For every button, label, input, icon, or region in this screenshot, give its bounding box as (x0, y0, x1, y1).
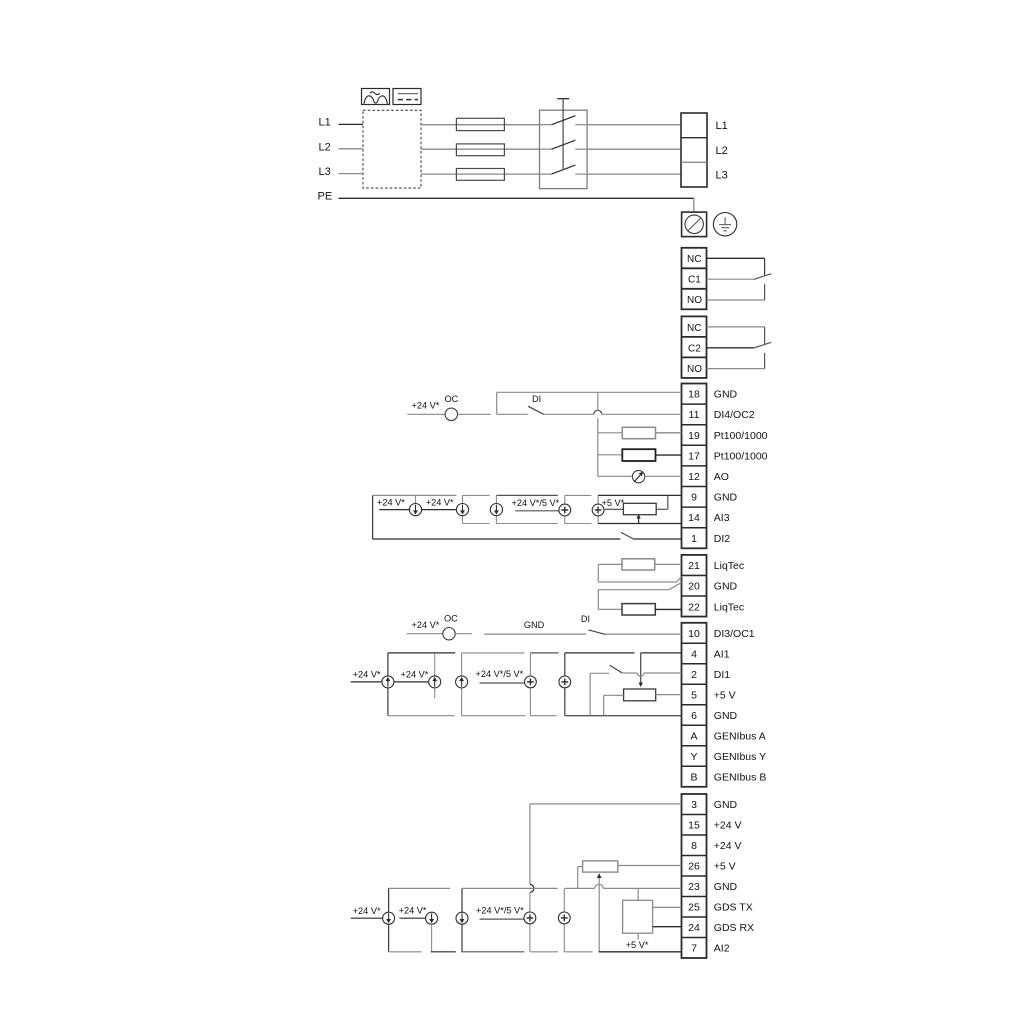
svg-text:GND: GND (714, 581, 738, 593)
svg-text:L3: L3 (319, 166, 331, 178)
svg-text:22: 22 (688, 601, 700, 613)
svg-text:24: 24 (688, 922, 700, 934)
svg-text:5: 5 (691, 689, 697, 701)
svg-text:PE: PE (318, 191, 333, 203)
svg-text:DI: DI (532, 394, 541, 404)
svg-text:2: 2 (691, 669, 697, 681)
svg-text:+24 V*: +24 V* (353, 906, 381, 916)
svg-text:GND: GND (524, 620, 545, 630)
svg-text:NO: NO (687, 295, 702, 306)
svg-text:9: 9 (691, 492, 697, 504)
svg-text:GDS RX: GDS RX (714, 922, 754, 934)
svg-text:4: 4 (691, 648, 697, 660)
svg-text:Pt100/1000: Pt100/1000 (714, 450, 768, 462)
svg-text:18: 18 (688, 389, 700, 401)
svg-text:LiqTec: LiqTec (714, 601, 744, 613)
svg-text:GENIbus B: GENIbus B (714, 771, 767, 783)
svg-text:6: 6 (691, 710, 697, 722)
svg-text:+24 V*/5 V*: +24 V*/5 V* (476, 905, 524, 915)
svg-text:DI4/OC2: DI4/OC2 (714, 409, 755, 421)
svg-text:C2: C2 (688, 343, 701, 354)
svg-text:19: 19 (688, 430, 700, 442)
svg-text:AO: AO (714, 471, 729, 483)
svg-text:+24 V: +24 V (714, 820, 742, 832)
svg-text:+24 V*: +24 V* (401, 670, 429, 680)
svg-text:+24 V*: +24 V* (377, 497, 405, 507)
svg-text:DI2: DI2 (714, 533, 731, 545)
svg-text:Y: Y (690, 751, 697, 763)
svg-text:GENIbus A: GENIbus A (714, 730, 766, 742)
svg-text:C1: C1 (688, 275, 701, 286)
svg-text:GND: GND (714, 710, 738, 722)
svg-text:+24 V*: +24 V* (353, 670, 381, 680)
svg-text:+24 V*: +24 V* (412, 401, 440, 411)
svg-text:LiqTec: LiqTec (714, 560, 744, 572)
svg-text:+24 V*: +24 V* (399, 905, 427, 915)
svg-text:+24 V*/5 V*: +24 V*/5 V* (512, 498, 560, 508)
svg-text:14: 14 (688, 512, 700, 524)
svg-text:26: 26 (688, 861, 700, 873)
svg-text:NC: NC (687, 323, 701, 334)
svg-text:+24 V: +24 V (714, 840, 742, 852)
svg-text:DI: DI (581, 614, 590, 624)
svg-text:8: 8 (691, 840, 697, 852)
svg-text:7: 7 (691, 943, 697, 955)
svg-text:OC: OC (445, 394, 459, 404)
svg-text:21: 21 (688, 560, 700, 572)
svg-text:25: 25 (688, 902, 700, 914)
svg-text:GND: GND (714, 389, 738, 401)
svg-text:GND: GND (714, 881, 738, 893)
svg-text:+5 V*: +5 V* (626, 940, 649, 950)
svg-text:GND: GND (714, 492, 738, 504)
svg-text:L2: L2 (716, 145, 728, 157)
svg-text:NC: NC (687, 254, 701, 265)
svg-text:11: 11 (689, 409, 700, 421)
svg-text:20: 20 (688, 581, 700, 593)
svg-text:L3: L3 (716, 170, 728, 182)
svg-text:GND: GND (714, 799, 738, 811)
svg-text:+24 V*: +24 V* (426, 497, 454, 507)
svg-text:15: 15 (688, 820, 700, 832)
svg-text:L1: L1 (716, 120, 728, 132)
svg-text:+24 V*/5 V*: +24 V*/5 V* (476, 669, 524, 679)
svg-text:3: 3 (691, 799, 697, 811)
svg-text:23: 23 (688, 881, 700, 893)
svg-text:GDS TX: GDS TX (714, 902, 753, 914)
svg-text:L1: L1 (319, 117, 331, 129)
svg-text:NO: NO (687, 364, 702, 375)
svg-text:OC: OC (444, 613, 458, 623)
svg-text:AI3: AI3 (714, 512, 730, 524)
svg-text:AI2: AI2 (714, 943, 730, 955)
svg-text:DI1: DI1 (714, 669, 731, 681)
svg-text:DI3/OC1: DI3/OC1 (714, 628, 755, 640)
svg-text:A: A (690, 730, 697, 742)
svg-text:10: 10 (688, 628, 700, 640)
svg-text:Pt100/1000: Pt100/1000 (714, 430, 768, 442)
svg-text:+5 V: +5 V (714, 861, 736, 873)
svg-text:1: 1 (691, 533, 697, 545)
svg-text:L2: L2 (319, 141, 331, 153)
svg-text:GENIbus Y: GENIbus Y (714, 751, 766, 763)
svg-text:+5 V*: +5 V* (602, 498, 625, 508)
svg-text:+5 V: +5 V (714, 689, 736, 701)
svg-text:B: B (690, 771, 697, 783)
svg-text:12: 12 (688, 471, 700, 483)
svg-text:17: 17 (688, 450, 700, 462)
svg-text:+24 V*: +24 V* (412, 620, 440, 630)
svg-text:AI1: AI1 (714, 648, 730, 660)
